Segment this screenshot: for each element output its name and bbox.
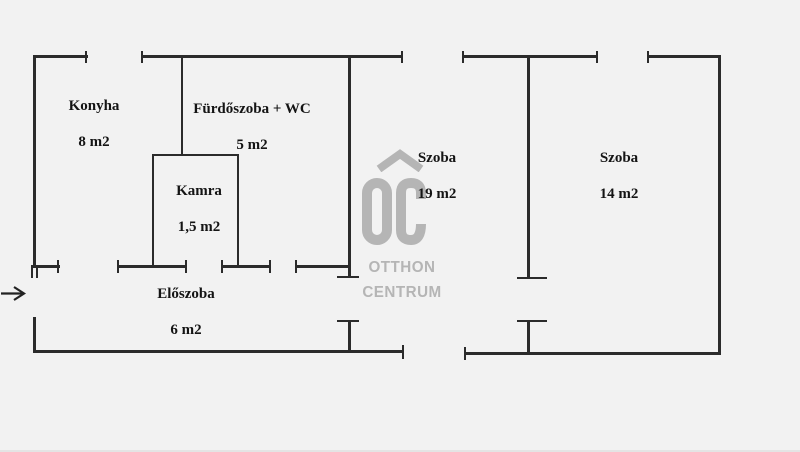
wall-tick <box>517 320 547 322</box>
wall-tick <box>462 51 464 63</box>
wall-tick <box>269 260 271 273</box>
wall-bath-right-stub <box>348 322 351 352</box>
wall-room-divider <box>527 55 530 279</box>
wall-tick <box>464 347 466 360</box>
room-area: 1,5 m2 <box>176 220 222 235</box>
wall-room-divider-stub <box>527 322 530 354</box>
wall-tick <box>337 276 359 278</box>
room-area: 19 m2 <box>418 187 457 202</box>
wall-bath-right <box>348 55 351 278</box>
wall-tick <box>402 345 404 359</box>
room-label-szoba-2: Szoba 14 m2 <box>600 151 639 202</box>
room-name: Fürdőszoba + WC <box>193 102 310 117</box>
wall-tick <box>185 260 187 273</box>
wall-tick <box>337 320 359 322</box>
wall-top-a <box>33 55 88 58</box>
oc-monogram-icon <box>362 178 426 245</box>
wall-kamra-top <box>153 154 238 156</box>
wall-hall-d <box>296 265 350 268</box>
wall-tick <box>401 51 403 63</box>
watermark-line1: OTTHON <box>368 259 435 276</box>
wall-right <box>718 55 721 355</box>
wall-tick <box>647 51 649 63</box>
room-area: 5 m2 <box>193 138 310 153</box>
entrance-arrow-icon <box>1 283 27 304</box>
room-label-furdoszoba: Fürdőszoba + WC 5 m2 <box>193 102 310 153</box>
wall-tick <box>117 260 119 273</box>
room-area: 6 m2 <box>157 323 215 338</box>
wall-bath-left <box>181 55 183 156</box>
wall-hall-c <box>222 265 270 268</box>
door-jamb-inner <box>36 265 38 278</box>
wall-top-c <box>463 55 598 58</box>
room-label-konyha: Konyha 8 m2 <box>69 99 120 150</box>
room-name: Konyha <box>69 99 120 114</box>
wall-tick <box>85 51 87 63</box>
wall-left <box>33 55 36 265</box>
floor-plan: OTTHON CENTRUM Konyh <box>0 0 800 452</box>
wall-bottom-right <box>465 352 720 355</box>
wall-kamra-right <box>237 154 239 267</box>
room-label-kamra: Kamra 1,5 m2 <box>176 184 222 235</box>
room-area: 8 m2 <box>69 135 120 150</box>
wall-kamra-left <box>152 154 154 267</box>
room-name: Előszoba <box>157 287 215 302</box>
room-name: Kamra <box>176 184 222 199</box>
room-area: 14 m2 <box>600 187 639 202</box>
wall-tick <box>221 260 223 273</box>
wall-tick <box>295 260 297 273</box>
wall-top-d <box>648 55 720 58</box>
door-jamb-outer <box>31 265 33 278</box>
wall-tick <box>141 51 143 63</box>
wall-tick <box>57 260 59 273</box>
watermark-line2: CENTRUM <box>362 284 441 301</box>
wall-tick <box>517 277 547 279</box>
wall-left-stub <box>33 317 36 353</box>
room-name: Szoba <box>600 151 639 166</box>
wall-tick <box>596 51 598 63</box>
room-label-eloszoba: Előszoba 6 m2 <box>157 287 215 338</box>
room-label-szoba-1: Szoba 19 m2 <box>418 151 457 202</box>
room-name: Szoba <box>418 151 457 166</box>
